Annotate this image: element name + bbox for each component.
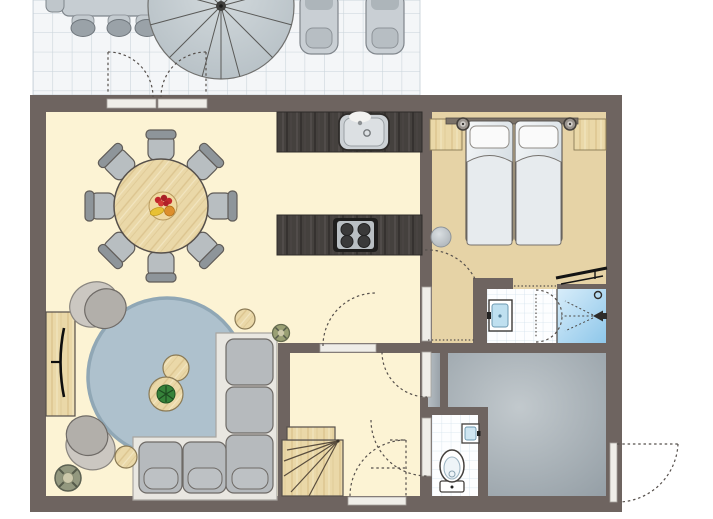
dining-chair bbox=[146, 130, 176, 160]
hallway bbox=[282, 427, 343, 496]
winder-staircase bbox=[282, 427, 343, 496]
outdoor-chair-side bbox=[46, 0, 64, 12]
potted-plant-small bbox=[273, 325, 290, 342]
round-stool bbox=[431, 227, 451, 247]
pillow bbox=[470, 126, 509, 148]
wood-side-panel-right bbox=[574, 119, 606, 150]
wall-lamp-left bbox=[457, 118, 469, 130]
sofa-seat-bolster bbox=[232, 468, 268, 489]
pillow bbox=[519, 126, 558, 148]
dining-chair bbox=[85, 191, 115, 221]
single-bed-right bbox=[515, 121, 562, 245]
dining-set bbox=[85, 130, 237, 282]
storage-exterior-door bbox=[610, 443, 617, 502]
hand-basin bbox=[462, 424, 481, 443]
sofa-cushion bbox=[226, 339, 273, 385]
burner bbox=[358, 236, 370, 248]
sofa-cushion bbox=[226, 387, 273, 433]
terrace-french-door-left bbox=[107, 99, 156, 108]
outdoor-chair bbox=[71, 15, 95, 37]
bedroom-door bbox=[422, 287, 431, 341]
outdoor-chair bbox=[107, 15, 131, 37]
sofa-seat-bolster bbox=[188, 468, 222, 489]
kitchen-sink bbox=[339, 112, 389, 151]
cooktop-hob bbox=[333, 218, 378, 252]
burner bbox=[358, 224, 370, 236]
duvet bbox=[467, 156, 512, 246]
bedroom-floor-strip bbox=[432, 284, 473, 343]
burner bbox=[341, 224, 353, 236]
sofa-seat-bolster bbox=[144, 468, 178, 489]
potted-plant-corner bbox=[55, 465, 81, 491]
single-bed-left bbox=[466, 121, 513, 245]
sun-lounger-right bbox=[366, 0, 404, 54]
bathroom-wall-piece bbox=[473, 278, 513, 288]
storage-closet-door bbox=[422, 352, 431, 397]
wall-lamp-right bbox=[564, 118, 576, 130]
dining-chair bbox=[146, 252, 176, 282]
side-table-upper bbox=[235, 309, 255, 329]
fruit-bowl bbox=[149, 192, 177, 220]
floor-plan-drawing bbox=[0, 0, 713, 519]
hand-basin-tap bbox=[477, 431, 481, 436]
basin-tap bbox=[487, 312, 491, 319]
terrace bbox=[33, 0, 420, 95]
exterior-door-swing bbox=[620, 444, 678, 502]
bathroom-doorway-floor bbox=[513, 284, 557, 289]
terrace-french-door-right bbox=[158, 99, 207, 108]
toilet bbox=[440, 450, 464, 492]
toilet-door bbox=[422, 418, 431, 476]
sun-lounger-left bbox=[300, 0, 338, 54]
coffee-table-with-plant bbox=[149, 377, 183, 411]
living-hallway-door bbox=[320, 344, 376, 352]
front-door bbox=[348, 497, 406, 505]
duvet bbox=[516, 156, 561, 246]
washbasin bbox=[487, 300, 512, 331]
orange bbox=[165, 206, 175, 216]
dining-chair bbox=[207, 191, 237, 221]
floor-plan bbox=[0, 0, 713, 519]
tv-cabinet bbox=[46, 312, 75, 416]
burner bbox=[341, 236, 353, 248]
side-table-lower bbox=[115, 446, 137, 468]
